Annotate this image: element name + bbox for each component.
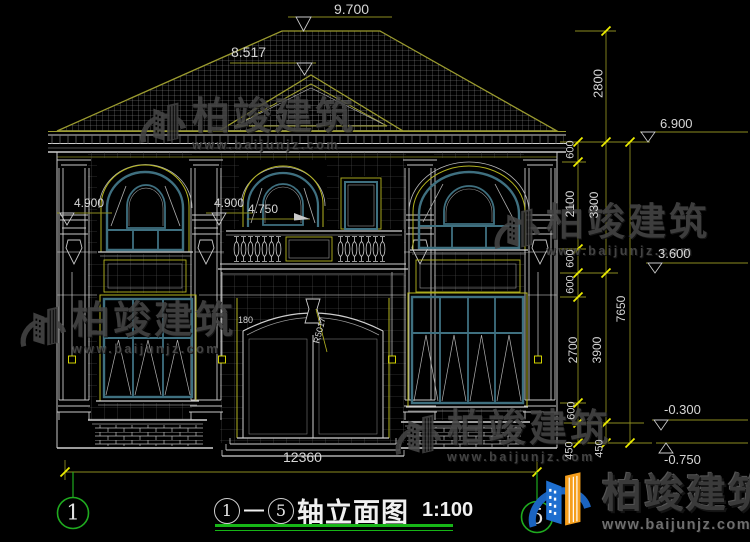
elevation-second-floor: 3.600 <box>658 247 691 260</box>
elevation-minus-300: -0.300 <box>664 403 701 416</box>
brand-url: www.baijunjz.com <box>602 517 750 533</box>
brand-logo: 柏竣建筑 www.baijunjz.com <box>516 464 750 542</box>
dim-plinth-600: 600 <box>567 389 578 433</box>
dim-window1f-2700: 2700 <box>567 328 579 372</box>
dim-head-600: 600 <box>566 263 577 307</box>
dim-total-7650: 7650 <box>615 287 627 331</box>
elevation-eave: 6.900 <box>660 117 693 130</box>
title-scale: 1:100 <box>422 499 473 522</box>
title-dash: — <box>244 499 264 522</box>
elevation-4900-center: 4.900 <box>214 197 244 209</box>
dim-story2-3300: 3300 <box>588 183 600 227</box>
dim-roof-2800: 2800 <box>592 62 605 106</box>
title-underline-thin <box>215 530 453 532</box>
dim-overall-width: 12360 <box>283 450 322 464</box>
elevation-4750: 4.750 <box>248 203 278 215</box>
title-axis-to: 5 <box>268 498 294 524</box>
elevation-pediment: 8.517 <box>231 45 266 59</box>
brand-company: 柏竣建筑 <box>602 474 750 514</box>
brand-logo-icon <box>516 464 600 542</box>
dim-window2f-2100: 2100 <box>564 182 576 226</box>
axis-bubble-1: 1 <box>66 503 79 524</box>
elevation-4900-left: 4.900 <box>74 197 104 209</box>
title-underline-thick <box>215 524 453 527</box>
cad-canvas: 柏竣建筑 www.baijunjz.com 柏竣建筑 www.baijunjz.… <box>0 0 750 542</box>
elevation-ridge: 9.700 <box>334 2 369 16</box>
title-axis-from: 1 <box>214 498 240 524</box>
dim-eave-600: 600 <box>566 128 577 172</box>
elevation-drawing <box>0 0 750 542</box>
dim-story1-3900: 3900 <box>591 328 603 372</box>
door-offset-label: 180 <box>238 316 253 325</box>
